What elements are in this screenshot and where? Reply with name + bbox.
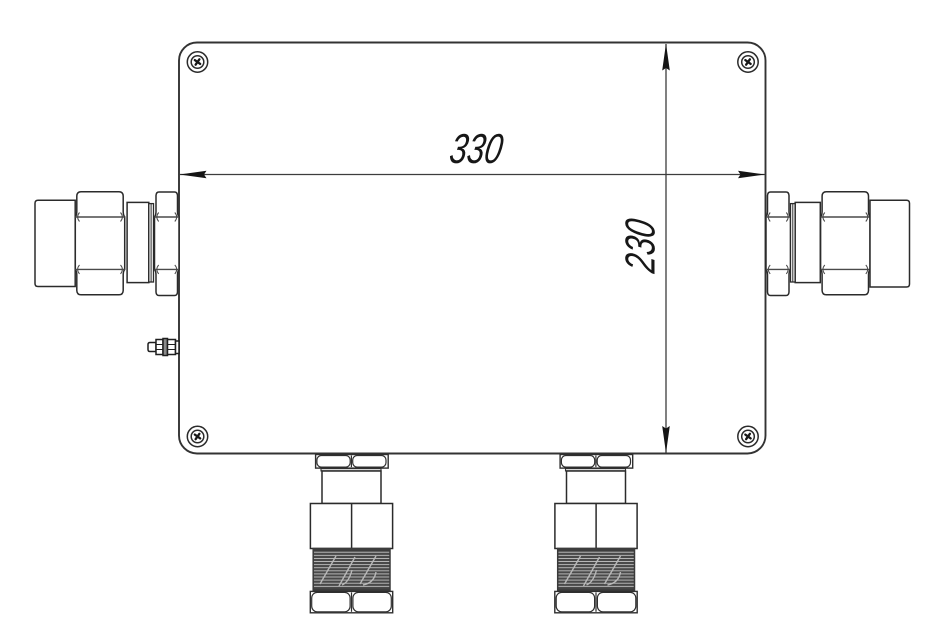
- svg-text:330: 330: [446, 125, 507, 172]
- svg-text:230: 230: [617, 215, 664, 276]
